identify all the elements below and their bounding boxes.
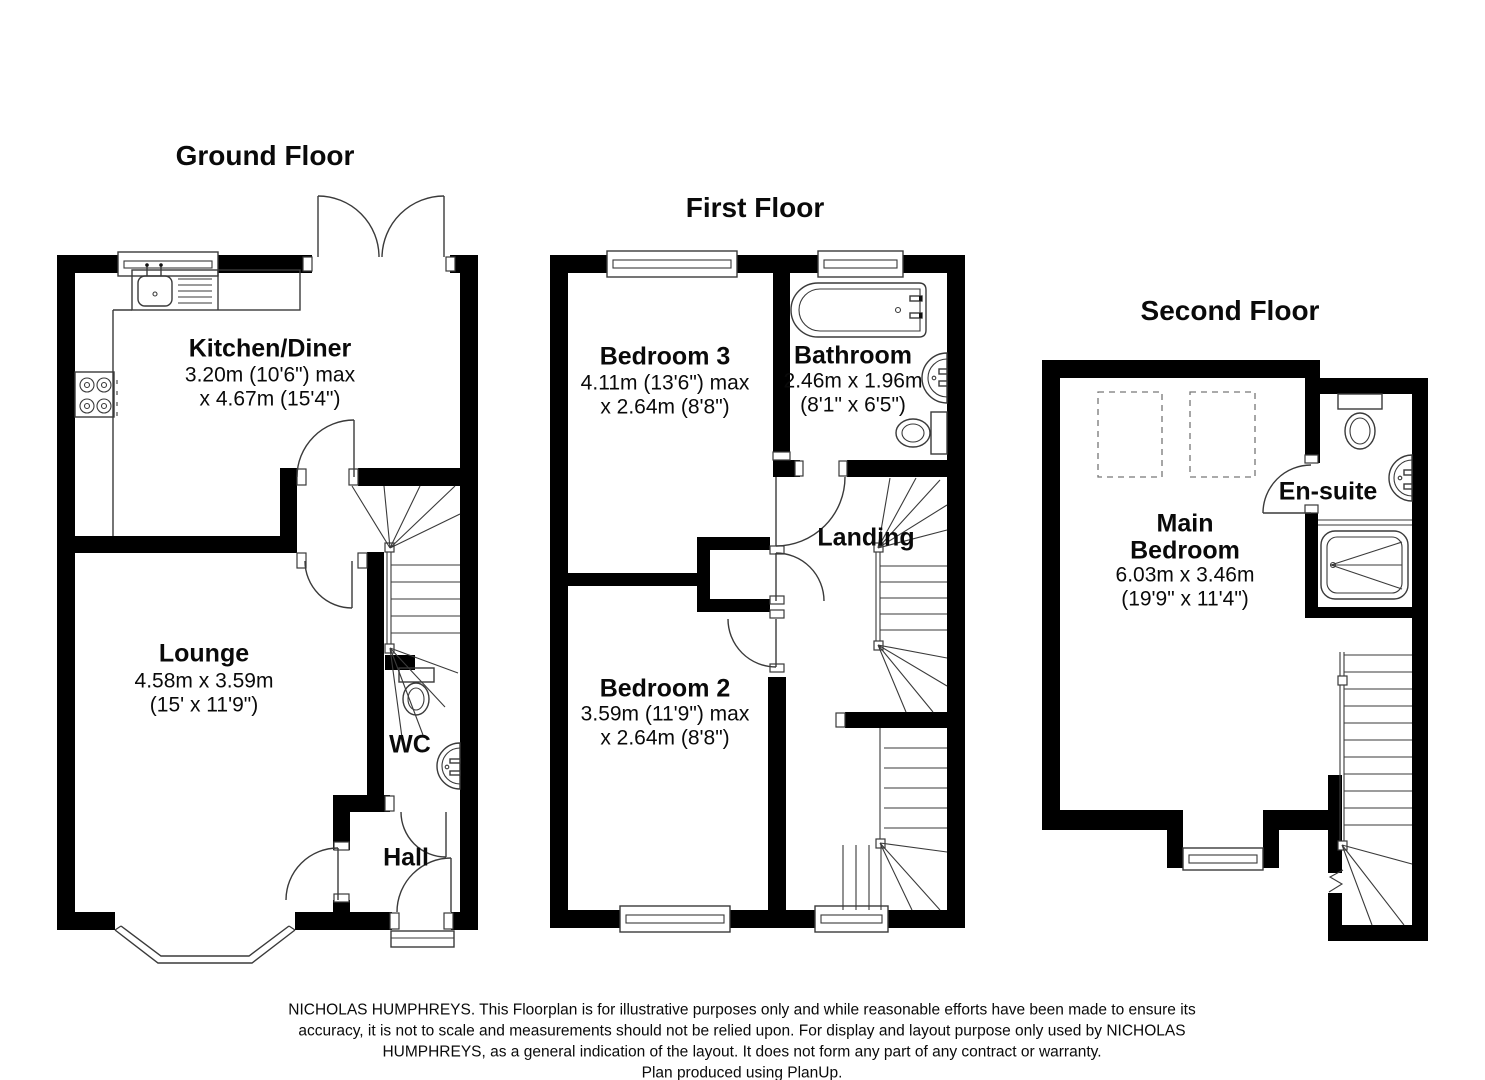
main-bedroom-label-line2: Bedroom bbox=[1130, 539, 1240, 564]
disclaimer-line-1: NICHOLAS HUMPHREYS. This Floorplan is fo… bbox=[288, 1002, 1195, 1018]
kitchen-room-label: Kitchen/Diner bbox=[189, 337, 352, 362]
main-bedroom-dim1: 6.03m x 3.46m bbox=[1116, 565, 1255, 586]
ground-floor-title: Ground Floor bbox=[176, 142, 355, 170]
dormer-window bbox=[1183, 848, 1263, 870]
bedroom2-door-arc bbox=[728, 619, 776, 667]
hall-room-label: Hall bbox=[383, 846, 429, 871]
lounge-dim2: (15' x 11'9") bbox=[150, 695, 258, 716]
lounge-dim1: 4.58m x 3.59m bbox=[135, 671, 274, 692]
disclaimer-line-2: accuracy, it is not to scale and measure… bbox=[298, 1023, 1185, 1039]
second-floor-plan bbox=[1042, 360, 1428, 941]
second-floor-title: Second Floor bbox=[1141, 297, 1320, 325]
hob-icon bbox=[75, 372, 117, 417]
stair-break-symbol bbox=[1329, 870, 1343, 892]
landing-room-label: Landing bbox=[817, 526, 914, 551]
bedroom2-dim2: x 2.64m (8'8") bbox=[600, 728, 729, 749]
shower-icon bbox=[1321, 531, 1408, 599]
wc-toilet-icon bbox=[399, 668, 434, 715]
bedroom3-dim1: 4.11m (13'6") max bbox=[581, 373, 750, 394]
kitchen-dim1: 3.20m (10'6") max bbox=[185, 365, 355, 386]
hall-lounge-door-arc bbox=[286, 848, 338, 900]
ensuite-divider-wall bbox=[1318, 520, 1412, 525]
lounge-door-arc bbox=[305, 561, 352, 608]
floorplan-canvas: Ground Floor Kitchen/Diner 3.20m (10'6")… bbox=[0, 0, 1485, 1080]
roof-window-icons bbox=[1098, 392, 1255, 477]
wc-sink-icon bbox=[437, 743, 460, 789]
wc-room-label: WC bbox=[389, 733, 431, 758]
ensuite-toilet-icon bbox=[1338, 394, 1382, 449]
drainer-lines bbox=[178, 279, 212, 303]
ensuite-room-label: En-suite bbox=[1279, 480, 1378, 505]
bathroom-toilet-icon bbox=[896, 412, 947, 454]
bedroom2-room-label: Bedroom 2 bbox=[600, 677, 731, 702]
bedroom2-dim1: 3.59m (11'9") max bbox=[581, 704, 750, 725]
bathroom-dim2: (8'1" x 6'5") bbox=[800, 395, 906, 416]
main-bedroom-label-line1: Main bbox=[1157, 512, 1214, 537]
bathroom-dim1: 2.46m x 1.96m bbox=[784, 371, 923, 392]
first-floor-title: First Floor bbox=[686, 194, 824, 222]
disclaimer-line-3: HUMPHREYS, as a general indication of th… bbox=[382, 1044, 1101, 1060]
french-doors-icon bbox=[318, 196, 444, 257]
kitchen-dim2: x 4.67m (15'4") bbox=[199, 389, 340, 410]
front-door-step bbox=[391, 931, 454, 947]
disclaimer-line-4: Plan produced using PlanUp. bbox=[642, 1065, 843, 1080]
bedroom3-door-arc bbox=[776, 553, 824, 601]
bedroom3-dim2: x 2.64m (8'8") bbox=[600, 397, 729, 418]
bathtub-icon bbox=[791, 283, 926, 337]
bay-window bbox=[115, 926, 295, 963]
ensuite-sink-icon bbox=[1389, 455, 1412, 501]
bathroom-sink-icon bbox=[922, 353, 947, 403]
lounge-room-label: Lounge bbox=[159, 642, 249, 667]
bathroom-room-label: Bathroom bbox=[794, 344, 912, 369]
main-bedroom-dim2: (19'9" x 11'4") bbox=[1121, 589, 1249, 610]
bedroom3-room-label: Bedroom 3 bbox=[600, 345, 731, 370]
kitchen-window bbox=[118, 252, 218, 276]
